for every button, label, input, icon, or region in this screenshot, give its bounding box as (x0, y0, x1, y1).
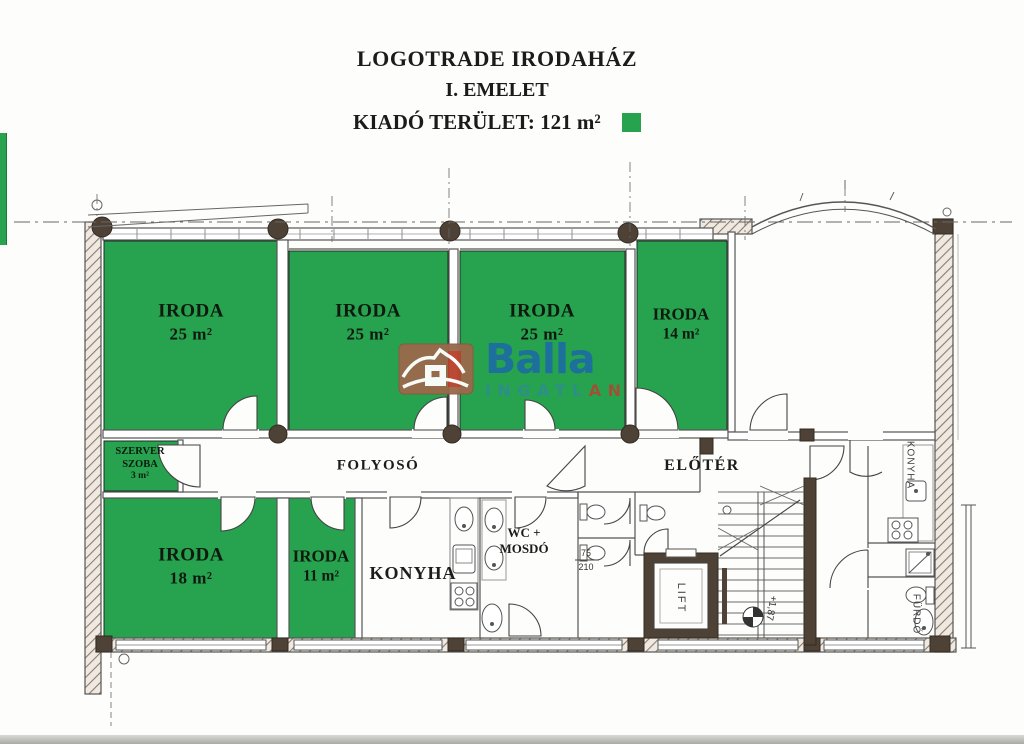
door-arc (515, 497, 546, 528)
room-label-eloter: ELŐTÉR (664, 456, 740, 476)
door-arc (390, 497, 421, 528)
room-label-folyoso: FOLYOSÓ (337, 457, 419, 476)
room-label-iroda-a: IRODA 25 m² (158, 300, 224, 345)
column (443, 425, 461, 443)
door-openings (218, 429, 883, 499)
dimension-line (961, 505, 976, 648)
door-arc (644, 529, 668, 553)
right-wall (935, 219, 953, 652)
column (269, 425, 287, 443)
toilet-icon (640, 505, 647, 521)
room-label-iroda-b: IRODA 25 m² (335, 300, 401, 345)
door-arc (604, 540, 630, 566)
room-label-iroda-f: IRODA 11 m² (293, 546, 350, 587)
room-label-iroda-e: IRODA 18 m² (158, 544, 224, 589)
room-label-wc-mosdo: WC + MOSDÓ (499, 525, 548, 558)
stair-start-marker (723, 506, 731, 514)
column (628, 638, 644, 651)
toilet-icon (580, 504, 587, 520)
stair-handrail (722, 568, 727, 624)
left-wall (85, 222, 101, 694)
column (933, 219, 953, 234)
lift-door (666, 549, 696, 557)
logo-house-icon (398, 341, 476, 397)
stair-landing-cross (718, 486, 804, 550)
grid-marker (119, 654, 129, 664)
door-arc (810, 446, 844, 480)
column (618, 223, 638, 243)
column (700, 438, 713, 454)
column (621, 425, 639, 443)
door-width-label: 75 (581, 548, 591, 558)
stair-wall (804, 478, 816, 645)
room-label-lift: LIFT (675, 583, 687, 614)
column (930, 636, 950, 652)
logo-brand-text: Balla (485, 341, 628, 379)
toilet-icon (926, 587, 934, 604)
stair-going-line (720, 500, 800, 556)
door-arc (604, 498, 630, 524)
curved-window-wall (752, 180, 936, 235)
door-arc (509, 604, 541, 636)
room-label-konyha: KONYHA (370, 562, 457, 585)
door-arc (830, 550, 868, 588)
logo-subbrand-text: INGATLAN (485, 381, 628, 400)
sink-icon (482, 604, 502, 632)
door-height-label: 210 (578, 562, 593, 572)
column (440, 221, 460, 241)
door-arc (547, 446, 585, 491)
column (448, 638, 464, 651)
column (96, 636, 112, 652)
room-label-szerver: SZERVER SZOBA 3 m² (115, 445, 164, 483)
door-arc (850, 440, 882, 476)
floorplan-page: LOGOTRADE IRODAHÁZ I. EMELET KIADÓ TERÜL… (0, 0, 1024, 744)
column (800, 429, 814, 441)
grid-marker (943, 208, 951, 216)
level-marker (743, 607, 763, 627)
door-arc (750, 394, 787, 430)
stove-icon (888, 518, 918, 542)
room-label-furdo: FÜRDŐ (911, 594, 922, 635)
big-room-left-wall (728, 232, 735, 432)
room-label-konyha-small: KONYHA (905, 441, 916, 489)
column (272, 638, 288, 651)
brand-logo: Balla INGATLAN (398, 341, 628, 400)
room-label-iroda-d: IRODA 14 m² (653, 304, 710, 345)
